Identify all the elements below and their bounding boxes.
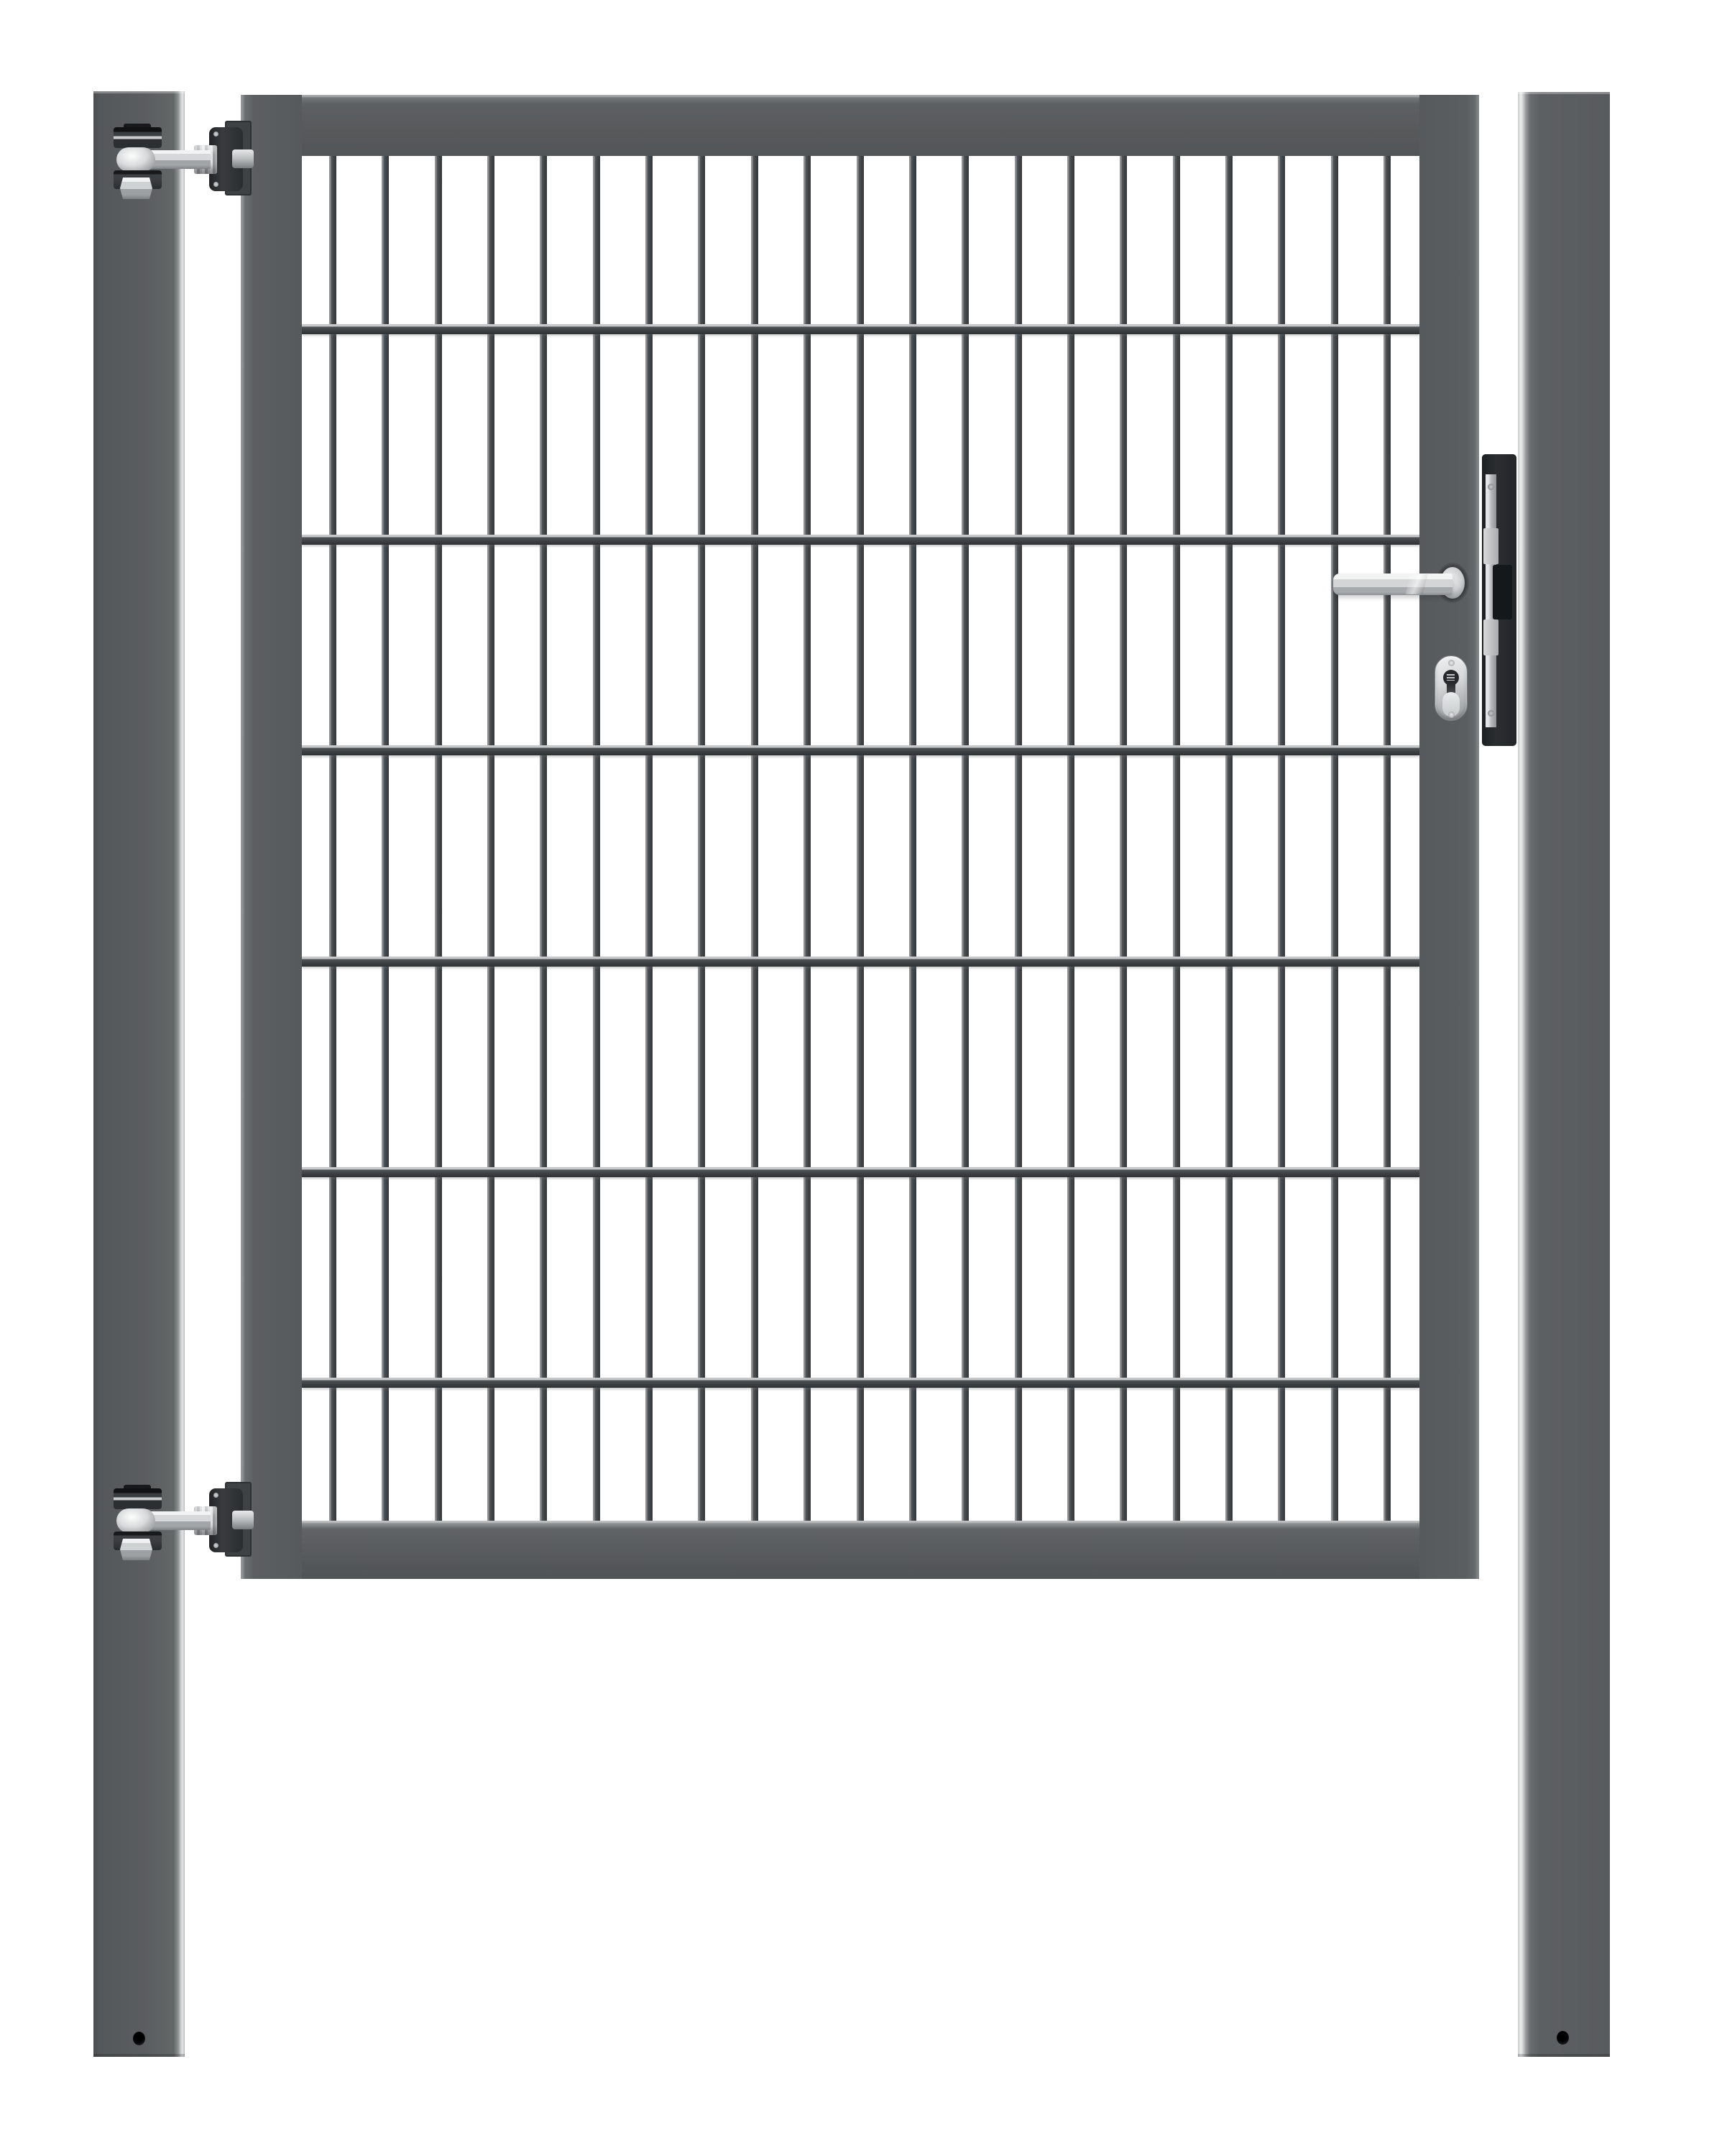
mesh-horizontal-bar xyxy=(302,535,1419,545)
gate-frame xyxy=(241,95,1479,1579)
mesh-vertical-bar xyxy=(1278,156,1285,1521)
latch-notch xyxy=(1493,565,1512,619)
lock-keeper xyxy=(1482,454,1516,746)
frame-right-stile xyxy=(1419,95,1479,1579)
strike-block xyxy=(1483,528,1498,564)
hinge-top xyxy=(111,121,259,201)
gate-product-image xyxy=(0,0,1722,2156)
mesh-vertical-bar xyxy=(804,156,811,1521)
mesh-vertical-bar xyxy=(1015,156,1022,1521)
mesh-vertical-bar xyxy=(962,156,969,1521)
mesh-vertical-bar xyxy=(1067,156,1074,1521)
mesh-vertical-bar xyxy=(382,156,389,1521)
hinge-barrel xyxy=(116,1508,155,1533)
mesh-vertical-bar xyxy=(540,156,547,1521)
frame-bottom-rail xyxy=(241,1521,1479,1579)
mesh-vertical-bar xyxy=(487,156,494,1521)
mesh-vertical-bar xyxy=(1383,156,1391,1521)
mesh-vertical-bar xyxy=(645,156,653,1521)
mesh-horizontal-bar xyxy=(302,745,1419,755)
escutcheon-screw xyxy=(1448,711,1455,718)
hinge-clamp-top-plate xyxy=(114,127,162,148)
mesh-vertical-bar xyxy=(435,156,442,1521)
mesh-vertical-bar xyxy=(751,156,758,1521)
mesh-vertical-bar xyxy=(1225,156,1233,1521)
handle-lever xyxy=(1333,573,1452,595)
strike-screw xyxy=(1488,484,1494,490)
hinge-adjust-bolt xyxy=(232,1511,254,1529)
strike-screw xyxy=(1488,710,1494,717)
mesh-vertical-bar xyxy=(329,156,336,1521)
mesh-vertical-bar xyxy=(593,156,600,1521)
hinge-bottom xyxy=(111,1482,259,1562)
drain-hole-left xyxy=(133,2032,145,2045)
mesh-vertical-bar xyxy=(1173,156,1180,1521)
hinge-barrel xyxy=(116,147,155,172)
frame-top-rail xyxy=(241,95,1479,156)
mesh-horizontal-bar xyxy=(302,324,1419,334)
hinge-hex-nut xyxy=(120,178,152,199)
mesh-vertical-bar xyxy=(857,156,864,1521)
mesh-panel xyxy=(302,156,1419,1521)
drain-hole-right xyxy=(1557,2031,1569,2045)
mesh-horizontal-bar xyxy=(302,1378,1419,1388)
strike-block xyxy=(1483,619,1498,655)
mesh-horizontal-bar xyxy=(302,957,1419,967)
lock-escutcheon xyxy=(1435,655,1468,721)
mesh-vertical-bar xyxy=(1120,156,1127,1521)
mesh-vertical-bar xyxy=(909,156,916,1521)
hinge-hex-nut xyxy=(120,1539,152,1560)
fence-post-left xyxy=(93,91,185,2057)
mesh-horizontal-bar xyxy=(302,1167,1419,1177)
mesh-vertical-bar xyxy=(1331,156,1338,1521)
escutcheon-screw xyxy=(1448,660,1455,666)
mesh-vertical-bar xyxy=(698,156,705,1521)
fence-post-right xyxy=(1518,92,1610,2057)
hinge-adjust-bolt xyxy=(232,149,254,168)
frame-left-stile xyxy=(241,95,302,1579)
hinge-clamp-top-plate xyxy=(114,1488,162,1509)
